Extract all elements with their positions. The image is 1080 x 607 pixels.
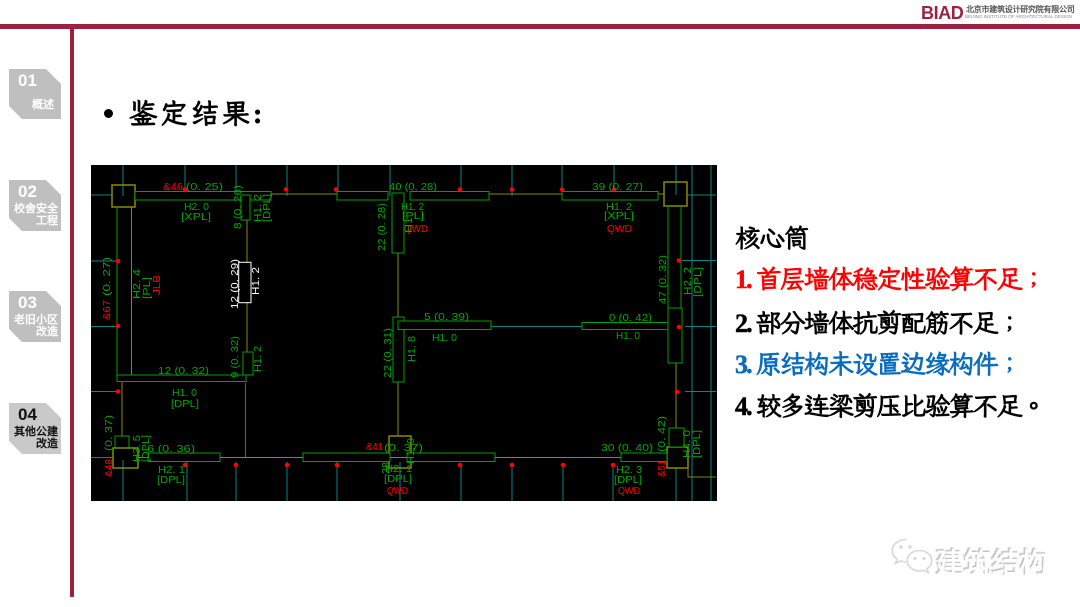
svg-text:&41: &41 [366,441,383,453]
svg-text:QWD: QWD [618,485,640,497]
svg-text:QWD: QWD [387,485,408,497]
svg-text:&46: &46 [163,181,183,193]
svg-text:(0. 27): (0. 27) [101,257,113,296]
svg-text:&67: &67 [101,300,113,320]
svg-text:5 (0. 39): 5 (0. 39) [424,311,469,323]
svg-text:12 (0. 29): 12 (0. 29) [229,259,241,309]
svg-text:H1. 0: H1. 0 [432,332,457,344]
svg-text:0 (0. 42): 0 (0. 42) [609,312,652,324]
svg-text:22 (0. 28): 22 (0. 28) [376,203,388,251]
svg-text:H1. 2: H1. 2 [252,346,264,372]
svg-text:28: 28 [380,462,392,474]
svg-text:12 (0. 32): 12 (0. 32) [158,365,209,377]
svg-text:[DPL]: [DPL] [692,267,704,297]
svg-text:[XPL]: [XPL] [181,211,211,223]
svg-text:H1. 0: H1. 0 [616,330,640,342]
svg-text:[DPL]: [DPL] [691,430,703,458]
svg-text:(0. 42): (0. 42) [656,416,668,452]
svg-text:30 (0. 40): 30 (0. 40) [601,442,653,454]
svg-text:[DPL]: [DPL] [171,398,199,410]
svg-text:8 (0. 26): 8 (0. 26) [232,185,244,229]
svg-text:6 (0. 36): 6 (0. 36) [147,443,195,455]
svg-text:[DPL]: [DPL] [140,435,152,462]
svg-text:[DPL]: [DPL] [261,194,273,222]
svg-text:40 (0. 28): 40 (0. 28) [389,181,437,193]
svg-text:H1. 2: H1. 2 [250,267,262,295]
svg-text:JLB: JLB [151,275,163,295]
svg-text:&48: &48 [103,459,115,477]
svg-text:QWD: QWD [607,223,632,235]
svg-text:9 (0. 32): 9 (0. 32) [229,336,241,378]
svg-text:39 (0. 27): 39 (0. 27) [592,181,643,193]
svg-text:H1. 8: H1. 8 [406,336,418,362]
svg-text:22 (0. 31): 22 (0. 31) [382,328,394,378]
svg-text:&51: &51 [656,460,668,477]
svg-text:[DPL]: [DPL] [157,474,185,486]
svg-text:(0. 37): (0. 37) [384,442,423,454]
svg-text:[XPL]: [XPL] [604,210,634,222]
svg-text:(0. 37): (0. 37) [103,415,115,451]
svg-text:47 (0. 32): 47 (0. 32) [657,255,669,304]
svg-text:(0. 25): (0. 25) [186,181,223,193]
svg-text:H1: H1 [403,217,415,233]
svg-text:H1. 9: H1. 9 [405,438,417,464]
